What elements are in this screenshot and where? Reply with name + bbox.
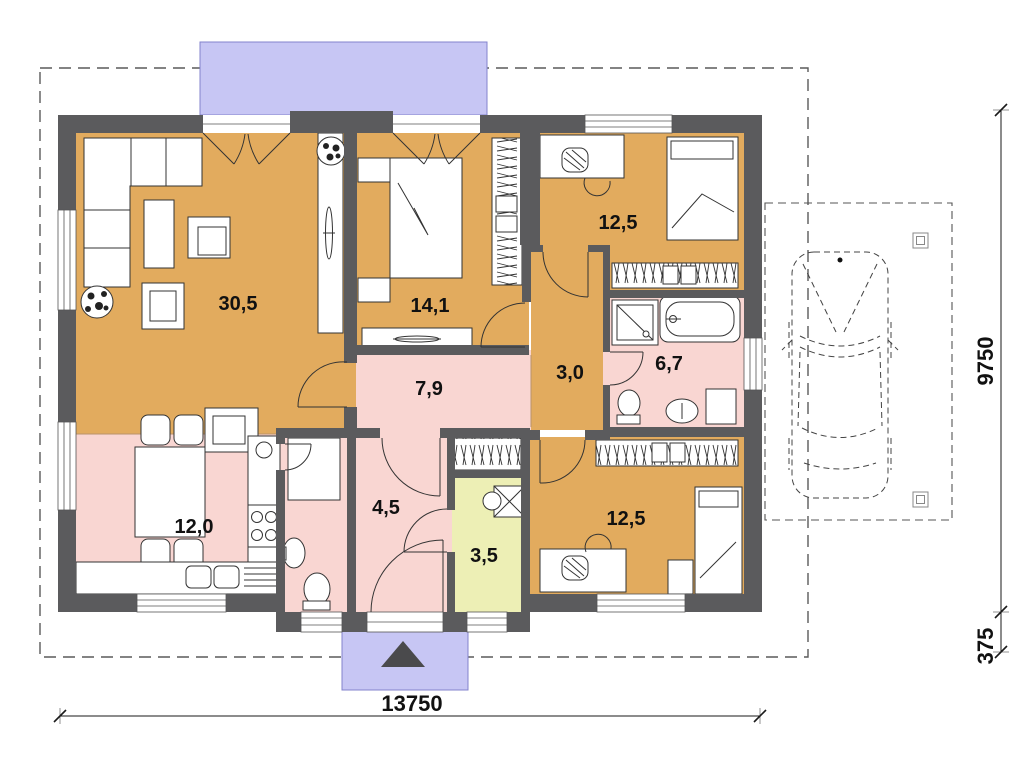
room-label: 6,7 xyxy=(655,353,683,375)
room-label: 30,5 xyxy=(219,293,258,315)
window xyxy=(58,210,76,310)
room-label: 12,5 xyxy=(599,212,638,234)
room-label: 4,5 xyxy=(372,497,400,519)
window xyxy=(301,612,342,632)
nightstand xyxy=(358,278,390,302)
coat-closet xyxy=(452,438,521,470)
car-icon xyxy=(782,252,898,498)
room-label: 12,0 xyxy=(175,516,214,538)
sink xyxy=(214,566,239,588)
dimension-width: 13750 xyxy=(381,691,442,716)
nightstand xyxy=(358,158,390,182)
cabinet xyxy=(706,389,736,424)
coffee-table xyxy=(144,200,174,268)
stove xyxy=(248,505,280,547)
chair xyxy=(141,415,170,445)
window xyxy=(744,338,762,390)
dimension-right: 9750 375 xyxy=(973,104,1009,664)
carport-post xyxy=(917,237,925,245)
window xyxy=(585,115,672,133)
bed xyxy=(390,158,462,278)
window xyxy=(137,594,226,612)
dimension-offset: 375 xyxy=(973,628,998,665)
room-label: 3,5 xyxy=(470,545,498,567)
closet xyxy=(288,438,340,500)
dimension-bottom: 13750 xyxy=(54,691,766,724)
pillow xyxy=(671,141,733,159)
nightstand xyxy=(668,560,693,594)
chair xyxy=(174,415,203,445)
plant-icon xyxy=(317,137,345,165)
floor-entrance-hall xyxy=(350,434,455,614)
room-label: 7,9 xyxy=(415,378,443,400)
floor-plan-page: 30,5 14,1 12,5 3,0 6,7 7,9 12,0 4,5 3,5 … xyxy=(0,0,1024,768)
sink xyxy=(186,566,211,588)
carport-post xyxy=(917,496,925,504)
dimension-height: 9750 xyxy=(973,337,998,386)
carport xyxy=(765,203,952,520)
floor-hallway xyxy=(356,350,531,438)
window xyxy=(597,594,685,612)
room-label: 12,5 xyxy=(607,508,646,530)
window xyxy=(467,612,507,632)
floor-corridor xyxy=(531,245,603,430)
kitchen-counter xyxy=(76,562,280,594)
room-label: 14,1 xyxy=(411,295,450,317)
toilet xyxy=(618,390,640,416)
window xyxy=(58,422,76,510)
plant-icon xyxy=(81,286,113,318)
pillow xyxy=(699,491,738,507)
floor-plan-drawing: 30,5 14,1 12,5 3,0 6,7 7,9 12,0 4,5 3,5 … xyxy=(0,0,1024,768)
room-label: 3,0 xyxy=(556,362,584,384)
terrace xyxy=(200,42,487,115)
toilet xyxy=(304,573,330,605)
